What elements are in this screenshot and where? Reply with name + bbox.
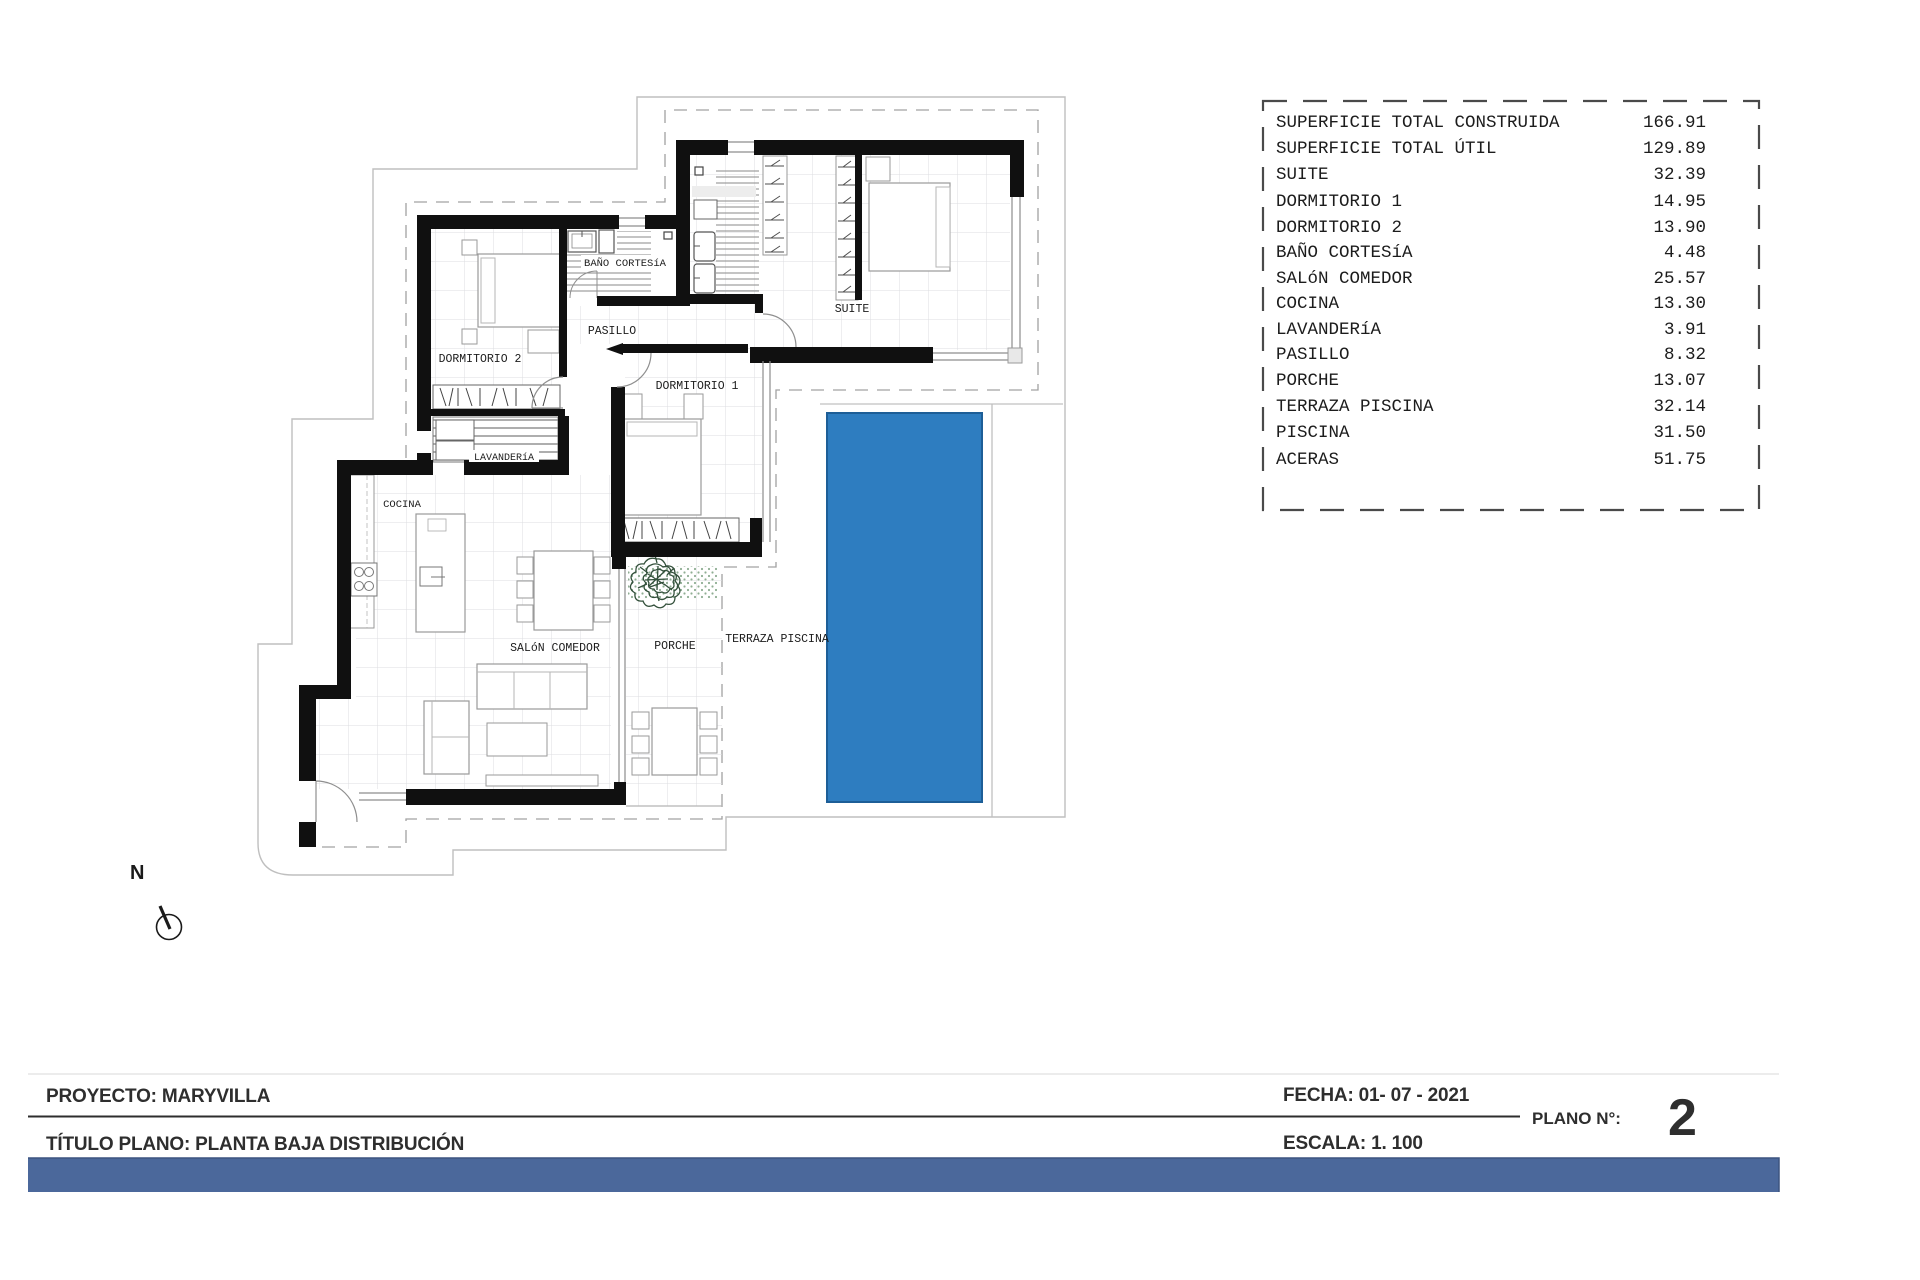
svg-text:COCINA: COCINA [1276,294,1340,314]
svg-text:32.14: 32.14 [1653,397,1706,417]
svg-text:TERRAZA PISCINA: TERRAZA PISCINA [1276,397,1434,417]
svg-text:PASILLO: PASILLO [588,325,636,338]
svg-text:SALóN COMEDOR: SALóN COMEDOR [510,642,600,655]
svg-text:PASILLO: PASILLO [1276,345,1350,365]
svg-text:32.39: 32.39 [1653,165,1706,185]
svg-text:BAÑO CORTESíA: BAÑO CORTESíA [584,257,667,270]
svg-text:TÍTULO PLANO: PLANTA BAJA DIST: TÍTULO PLANO: PLANTA BAJA DISTRIBUCIÓN [46,1133,464,1155]
svg-text:31.50: 31.50 [1653,423,1706,443]
svg-text:8.32: 8.32 [1664,345,1706,365]
svg-text:3.91: 3.91 [1664,320,1706,340]
svg-text:SUITE: SUITE [1276,165,1329,185]
svg-text:DORMITORIO 1: DORMITORIO 1 [656,380,739,393]
svg-text:2: 2 [1668,1089,1697,1147]
svg-text:166.91: 166.91 [1643,113,1706,133]
svg-text:SALóN COMEDOR: SALóN COMEDOR [1276,269,1413,289]
svg-text:PISCINA: PISCINA [1276,423,1350,443]
svg-text:PORCHE: PORCHE [1276,371,1339,391]
svg-text:SUITE: SUITE [835,303,870,316]
svg-text:51.75: 51.75 [1653,450,1706,470]
svg-text:13.07: 13.07 [1653,371,1706,391]
svg-text:COCINA: COCINA [383,499,422,511]
svg-text:25.57: 25.57 [1653,269,1706,289]
svg-text:129.89: 129.89 [1643,139,1706,159]
svg-text:DORMITORIO 1: DORMITORIO 1 [1276,192,1402,212]
svg-text:ESCALA: 1. 100: ESCALA: 1. 100 [1283,1133,1423,1154]
svg-text:4.48: 4.48 [1664,243,1706,263]
svg-text:LAVANDERíA: LAVANDERíA [1276,320,1382,340]
svg-text:ACERAS: ACERAS [1276,450,1339,470]
svg-text:14.95: 14.95 [1653,192,1706,212]
svg-text:N: N [130,862,144,884]
svg-text:DORMITORIO 2: DORMITORIO 2 [439,353,522,366]
svg-text:PORCHE: PORCHE [654,640,696,653]
svg-text:13.30: 13.30 [1653,294,1706,314]
svg-text:BAÑO CORTESíA: BAÑO CORTESíA [1276,242,1413,263]
svg-text:TERRAZA PISCINA: TERRAZA PISCINA [725,633,829,646]
svg-text:PLANO N°:: PLANO N°: [1532,1109,1621,1128]
svg-text:FECHA: 01- 07 - 2021: FECHA: 01- 07 - 2021 [1283,1085,1470,1106]
svg-text:SUPERFICIE TOTAL CONSTRUIDA: SUPERFICIE TOTAL CONSTRUIDA [1276,113,1560,133]
svg-text:DORMITORIO 2: DORMITORIO 2 [1276,218,1402,238]
svg-text:PROYECTO: MARYVILLA: PROYECTO: MARYVILLA [46,1086,271,1107]
svg-text:SUPERFICIE TOTAL ÚTIL: SUPERFICIE TOTAL ÚTIL [1276,137,1497,159]
svg-text:LAVANDERíA: LAVANDERíA [474,452,534,464]
svg-text:13.90: 13.90 [1653,218,1706,238]
